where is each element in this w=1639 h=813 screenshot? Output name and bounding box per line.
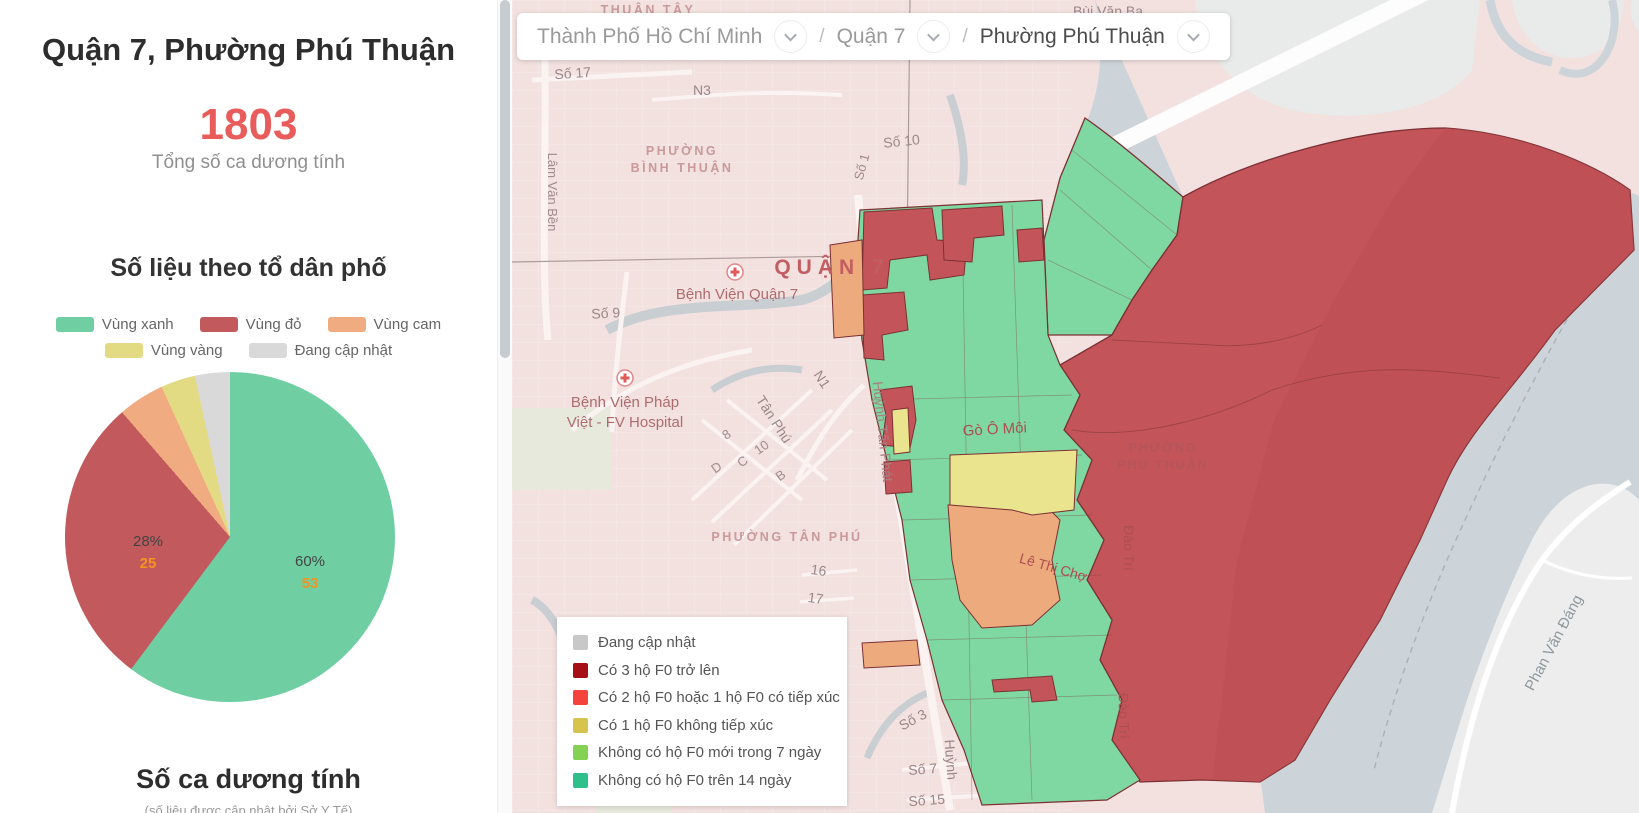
pie-section-title: Số liệu theo tổ dân phố <box>0 254 497 283</box>
map-label-phuong-tan-phu: PHƯỜNG TÂN PHÚ <box>711 529 862 544</box>
positive-cases-section-subtitle-clipped: (số liệu được cập nhật bởi Sở Y Tế) <box>0 803 497 813</box>
legend-item-vung-do[interactable]: Vùng đỏ <box>200 316 302 333</box>
map-label-so-15: Số 15 <box>908 791 946 810</box>
positive-cases-section-title: Số ca dương tính <box>0 764 497 795</box>
chevron-down-icon <box>1187 29 1200 42</box>
map-legend-row: Có 2 hộ F0 hoặc 1 hộ F0 có tiếp xúc <box>573 684 831 712</box>
breadcrumb-separator: / <box>819 26 824 48</box>
legend-item-vung-vang[interactable]: Vùng vàng <box>105 342 223 359</box>
map-legend: Đang cập nhật Có 3 hộ F0 trở lên Có 2 hộ… <box>557 617 847 806</box>
map-label-phuong-binh-thuan-1: PHƯỜNG <box>646 143 718 158</box>
map-legend-row: Có 1 hộ F0 không tiếp xúc <box>573 712 831 740</box>
pie-label-green: 60% 53 <box>275 553 345 592</box>
legend-swatch-gray <box>573 635 588 650</box>
map-label-quan-7: QUẬN 7 <box>774 255 889 279</box>
ward-dropdown-button[interactable] <box>1177 20 1210 53</box>
vung-cam-swatch <box>328 317 366 332</box>
legend-swatch-teal <box>573 773 588 788</box>
page-title: Quận 7, Phường Phú Thuận <box>0 32 497 68</box>
map-label-phuong-phu-thuan-1: PHƯỜNG <box>1128 440 1197 455</box>
chevron-down-icon <box>784 29 797 42</box>
map-label-bv-fv-1: Bệnh Viện Pháp <box>571 394 679 411</box>
map-label-bv-quan-7: Bệnh Viện Quận 7 <box>676 286 798 303</box>
breadcrumb-item-ward[interactable]: Phường Phú Thuận <box>980 25 1165 49</box>
pie-label-red: 28% 25 <box>113 533 183 572</box>
legend-swatch-lightgreen <box>573 745 588 760</box>
map-legend-row: Có 3 hộ F0 trở lên <box>573 657 831 685</box>
map-label-lam-van-ben: Lâm Văn Bền <box>545 153 560 232</box>
covid-dashboard: Quận 7, Phường Phú Thuận 1803 Tổng số ca… <box>0 0 1639 813</box>
hospital-marker-bv-quan7 <box>727 264 743 280</box>
city-dropdown-button[interactable] <box>774 20 807 53</box>
map-label-16: 16 <box>810 561 828 579</box>
vung-xanh-swatch <box>56 317 94 332</box>
hospital-marker-fv <box>617 370 633 386</box>
breadcrumb: Thành Phố Hồ Chí Minh / Quận 7 / Phường … <box>517 13 1230 60</box>
map-label-go-o-moi: Gò Ô Môi <box>962 419 1027 439</box>
map-legend-row: Đang cập nhật <box>573 629 831 657</box>
breadcrumb-item-city[interactable]: Thành Phố Hồ Chí Minh <box>537 25 762 49</box>
vung-do-swatch <box>200 317 238 332</box>
map-label-huynh: Huỳnh <box>942 739 961 780</box>
map-label-dao-tri-1: Đào Trí <box>1121 525 1137 571</box>
legend-item-vung-xanh[interactable]: Vùng xanh <box>56 316 174 333</box>
legend-swatch-red <box>573 690 588 705</box>
total-cases-label: Tổng số ca dương tính <box>0 152 497 174</box>
vung-vang-swatch <box>105 343 143 358</box>
legend-swatch-darkred <box>573 663 588 678</box>
map-label-phuong-binh-thuan-2: BÌNH THUẬN <box>631 160 734 175</box>
map-label-phuong-phu-thuan-2: PHÚ THUẬN <box>1117 457 1209 472</box>
total-cases-value: 1803 <box>0 100 497 150</box>
map-legend-row: Không có hộ F0 mới trong 7 ngày <box>573 739 831 767</box>
legend-item-dang-cap-nhat[interactable]: Đang cập nhật <box>249 342 393 359</box>
map-label-so-9: Số 9 <box>591 304 621 321</box>
dang-cap-nhat-swatch <box>249 343 287 358</box>
sidebar-scrollbar-thumb[interactable] <box>500 0 510 358</box>
breadcrumb-separator: / <box>962 26 967 48</box>
sidebar-scrollbar[interactable] <box>497 0 512 813</box>
map-label-so-17: Số 17 <box>554 64 592 83</box>
stats-sidebar: Quận 7, Phường Phú Thuận 1803 Tổng số ca… <box>0 0 497 813</box>
map-legend-row: Không có hộ F0 trên 14 ngày <box>573 767 831 795</box>
map-label-dao-tri-2: Đào Trí <box>1116 693 1133 739</box>
map-canvas[interactable]: THUẬN TÂY Bùi Văn Ba Số 17 N3 Số 1 Số 10… <box>512 0 1639 813</box>
map-label-n3: N3 <box>693 82 711 98</box>
map-label-17: 17 <box>807 589 825 607</box>
pie-legend: Vùng xanh Vùng đỏ Vùng cam Vùng vàng <box>0 316 497 359</box>
district-dropdown-button[interactable] <box>917 20 950 53</box>
legend-item-vung-cam[interactable]: Vùng cam <box>328 316 442 333</box>
map-label-so-7: Số 7 <box>908 760 938 778</box>
legend-swatch-yellow <box>573 718 588 733</box>
breadcrumb-item-district[interactable]: Quận 7 <box>837 25 906 49</box>
chevron-down-icon <box>928 29 941 42</box>
map-label-bv-fv-2: Việt - FV Hospital <box>567 414 683 431</box>
